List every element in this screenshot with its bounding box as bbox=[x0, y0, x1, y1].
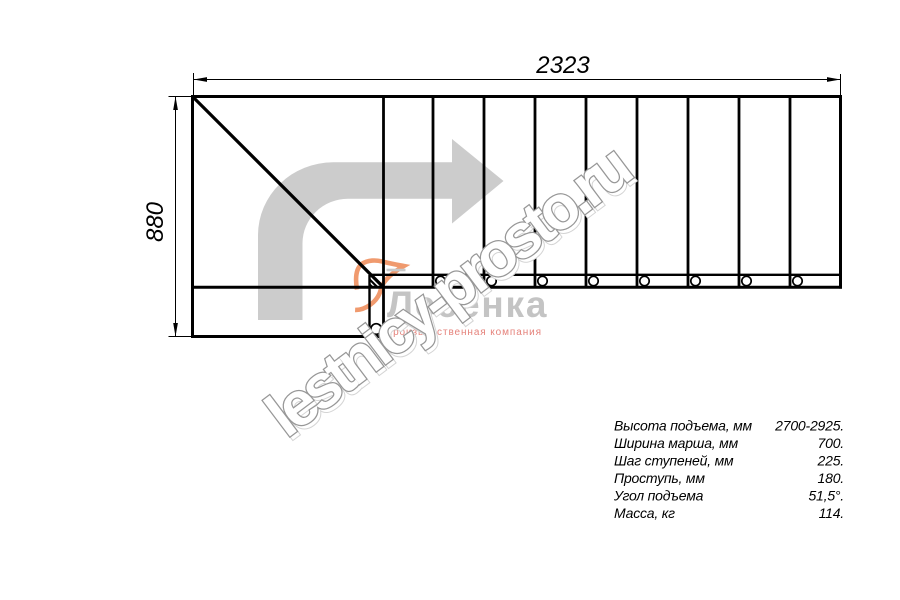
svg-text:Ширина марша, мм: Ширина марша, мм bbox=[614, 435, 739, 451]
svg-text:225.: 225. bbox=[817, 453, 844, 469]
svg-text:51,5°.: 51,5°. bbox=[808, 488, 844, 504]
svg-text:Масса, кг: Масса, кг bbox=[614, 505, 675, 521]
svg-text:Шаг ступеней, мм: Шаг ступеней, мм bbox=[614, 453, 734, 469]
svg-text:Проступь, мм: Проступь, мм bbox=[614, 470, 705, 486]
svg-text:Высота подъема, мм: Высота подъема, мм bbox=[614, 418, 753, 434]
svg-text:2323: 2323 bbox=[535, 52, 590, 79]
svg-text:700.: 700. bbox=[818, 435, 844, 451]
svg-text:2700-2925.: 2700-2925. bbox=[774, 418, 844, 434]
svg-text:Угол подъема: Угол подъема bbox=[613, 488, 704, 504]
svg-text:114.: 114. bbox=[819, 505, 844, 521]
svg-text:180.: 180. bbox=[818, 470, 844, 486]
svg-text:880: 880 bbox=[142, 201, 169, 242]
